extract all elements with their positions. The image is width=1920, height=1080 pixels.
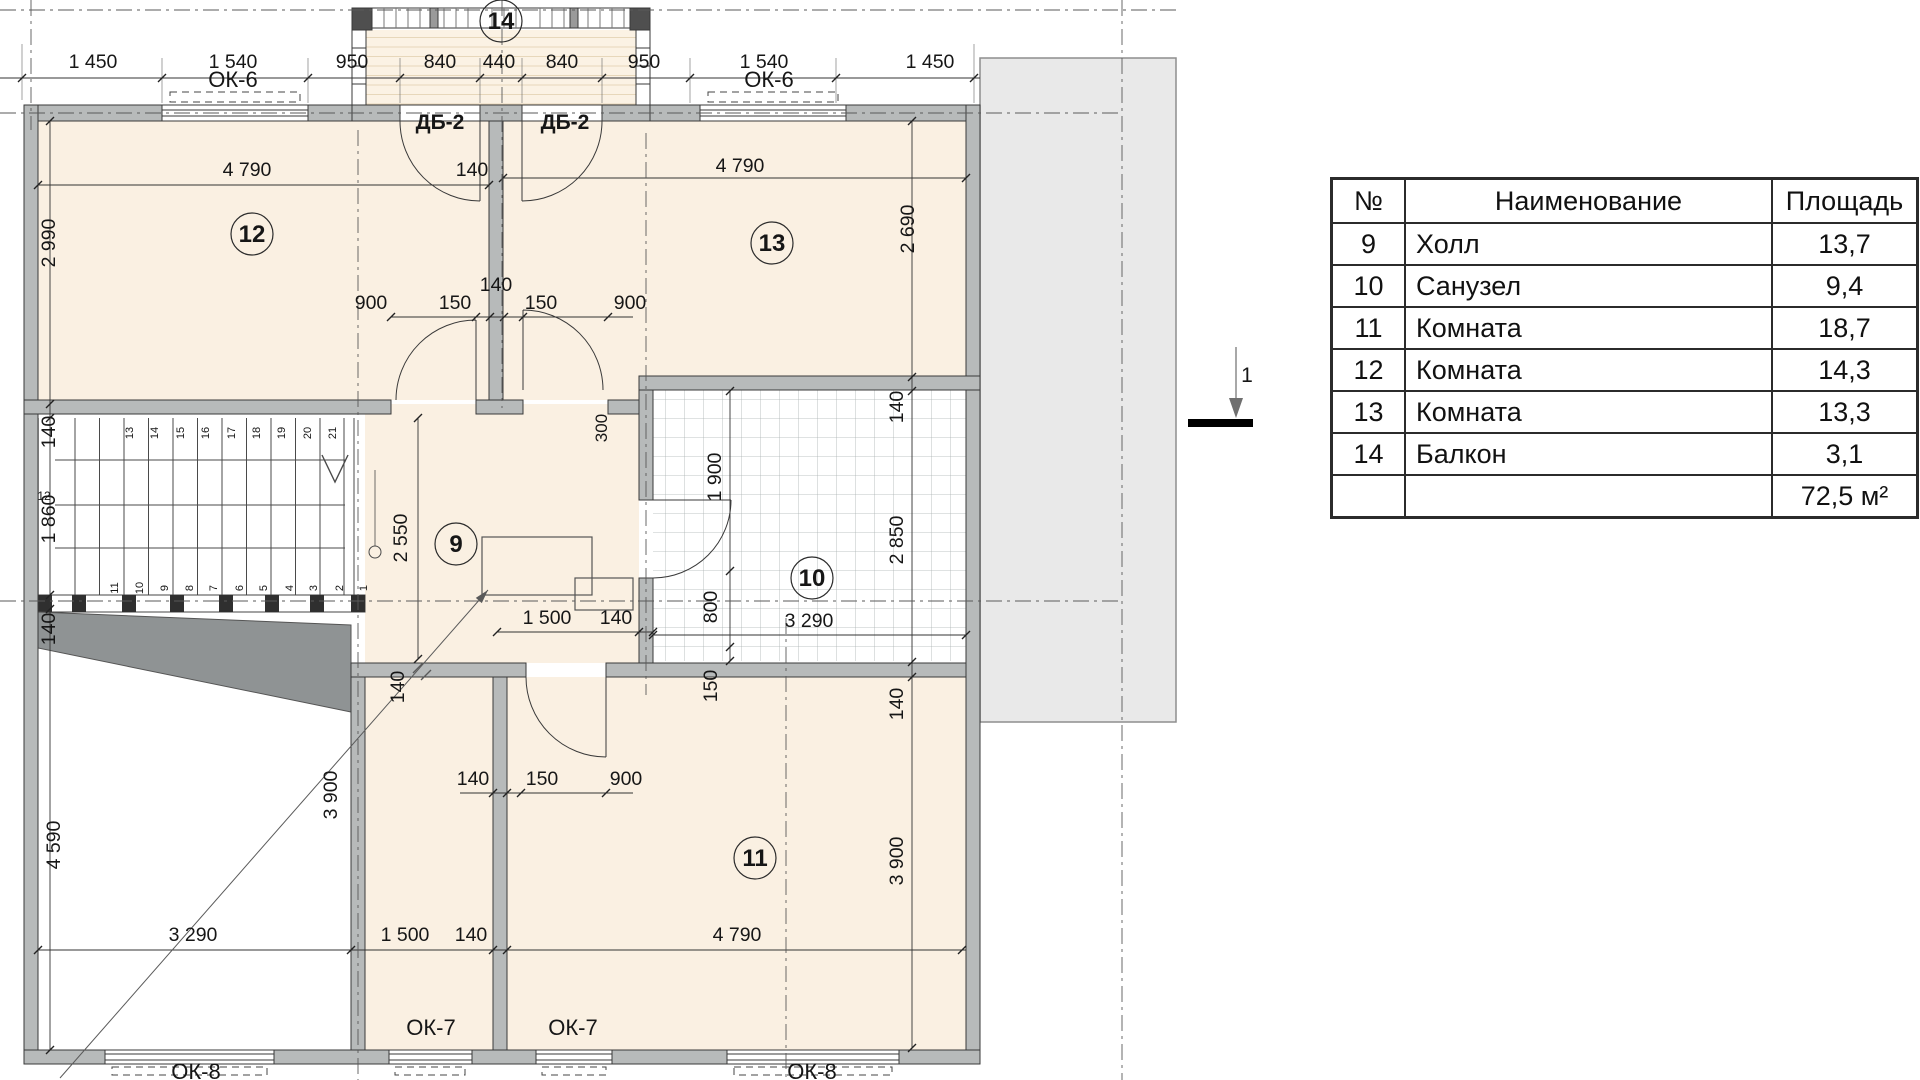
- dim-label: 17: [226, 427, 238, 439]
- dim-label: 140: [38, 613, 60, 646]
- dim-label: 950: [628, 51, 661, 73]
- table-header-area: Площадь: [1772, 179, 1917, 223]
- dim-label: 4 790: [713, 924, 762, 946]
- table-cell-area: 13,7: [1772, 223, 1917, 265]
- dim-label: 1: [1241, 364, 1253, 387]
- dim-label: 12: [37, 489, 51, 503]
- dim-label: 10: [134, 582, 146, 594]
- dim-label: 140: [455, 924, 488, 946]
- table-cell-name: Комната: [1405, 391, 1772, 433]
- table-cell-area: 13,3: [1772, 391, 1917, 433]
- floor-plan-page: 1 4501 5409508404408409501 5401 4504 790…: [0, 0, 1920, 1080]
- svg-text:13: 13: [759, 230, 786, 257]
- dim-label: 3: [308, 585, 320, 591]
- dim-label: 5: [258, 585, 270, 591]
- table-cell-name: Балкон: [1405, 433, 1772, 475]
- table-cell-name: Комната: [1405, 307, 1772, 349]
- table-cell-name: Комната: [1405, 349, 1772, 391]
- dim-label: 6: [234, 585, 246, 591]
- dim-label: 140: [480, 274, 513, 296]
- dim-label: 13: [124, 427, 136, 439]
- dim-label: 140: [456, 159, 489, 181]
- dim-label: 140: [886, 688, 908, 721]
- dim-label: ДБ-2: [541, 111, 590, 134]
- table-cell-area: 9,4: [1772, 265, 1917, 307]
- dim-label: 3 290: [785, 610, 834, 632]
- table-cell-area: 3,1: [1772, 433, 1917, 475]
- table-header-num: №: [1332, 179, 1405, 223]
- window-tag: ОК-7: [548, 1015, 598, 1040]
- dim-label: 900: [355, 292, 388, 314]
- window-tag: ОК-7: [406, 1015, 456, 1040]
- dim-label: 1 500: [381, 924, 430, 946]
- dim-label: 9: [159, 585, 171, 591]
- table-cell-num: 9: [1332, 223, 1405, 265]
- table-cell-name: [1405, 475, 1772, 517]
- dim-label: 800: [700, 591, 722, 624]
- dim-label: 3 900: [320, 770, 342, 819]
- stair-cut-band: [38, 595, 365, 612]
- svg-text:11: 11: [742, 845, 767, 872]
- table-cell-area: 18,7: [1772, 307, 1917, 349]
- window-ok7-right: [536, 1050, 612, 1064]
- dim-label: 11: [109, 582, 121, 593]
- balcony-post-right: [630, 8, 650, 30]
- dim-label: 300: [592, 414, 611, 442]
- table-cell-num: 14: [1332, 433, 1405, 475]
- window-tag: ОК-8: [171, 1059, 221, 1080]
- dim-label: 140: [600, 607, 633, 629]
- table-cell-name: Санузел: [1405, 265, 1772, 307]
- svg-text:12: 12: [239, 221, 266, 248]
- dim-label: 140: [38, 416, 60, 449]
- dim-label: 4 590: [43, 820, 65, 869]
- stair-underside-wedge: [38, 612, 351, 712]
- table-cell-num: 12: [1332, 349, 1405, 391]
- dim-label: 15: [175, 427, 187, 439]
- svg-text:9: 9: [449, 531, 462, 558]
- dim-label: 2 690: [897, 204, 919, 253]
- dim-label: 2 850: [886, 515, 908, 564]
- window-tag: ОК-6: [208, 67, 258, 92]
- dim-label: 3 900: [886, 836, 908, 885]
- dim-label: 3 290: [169, 924, 218, 946]
- svg-text:14: 14: [488, 8, 515, 35]
- dim-label: 21: [327, 427, 339, 439]
- dim-label: 150: [525, 292, 558, 314]
- dim-label: 2 550: [390, 513, 412, 562]
- table-cell-num: 11: [1332, 307, 1405, 349]
- table-cell-total-area: 72,5 м²: [1772, 475, 1917, 517]
- dim-label: 14: [149, 427, 161, 439]
- dim-label: 1 900: [704, 452, 726, 501]
- table-cell-num: 10: [1332, 265, 1405, 307]
- dim-label: ДБ-2: [416, 111, 465, 134]
- dim-label: 4 790: [716, 155, 765, 177]
- dim-label: 16: [200, 427, 212, 439]
- dim-label: 900: [610, 768, 643, 790]
- dim-label: 1 450: [906, 51, 955, 73]
- dim-label: 840: [546, 51, 579, 73]
- table-header-name: Наименование: [1405, 179, 1772, 223]
- dim-label: 140: [886, 391, 908, 424]
- dim-label: 140: [387, 671, 409, 704]
- table-cell-num: 13: [1332, 391, 1405, 433]
- dim-label: 150: [700, 670, 722, 703]
- table-cell-name: Холл: [1405, 223, 1772, 265]
- dim-label: 8: [184, 585, 196, 591]
- dim-label: 7: [208, 585, 220, 591]
- table-cell-area: 14,3: [1772, 349, 1917, 391]
- dim-label: 18: [251, 427, 263, 439]
- svg-text:10: 10: [799, 565, 826, 592]
- window-ok7-left: [389, 1050, 472, 1064]
- dim-label: 2 990: [38, 218, 60, 267]
- dim-label: 440: [483, 51, 516, 73]
- dim-label: 20: [302, 427, 314, 439]
- balcony-post-left: [352, 8, 372, 30]
- section-marker: [1188, 347, 1253, 427]
- section-bar: [1188, 419, 1253, 427]
- window-tag: ОК-8: [787, 1059, 837, 1080]
- dim-label: 1 500: [523, 607, 572, 629]
- dim-label: 4 790: [223, 159, 272, 181]
- dim-label: 19: [276, 427, 288, 439]
- room-schedule-table: №НаименованиеПлощадь9Холл13,710Санузел9,…: [1330, 177, 1919, 519]
- dim-label: 2: [334, 585, 346, 591]
- table-cell-num: [1332, 475, 1405, 517]
- section-arrow: [1229, 398, 1243, 418]
- window-tag: ОК-6: [744, 67, 794, 92]
- dim-label: 950: [336, 51, 369, 73]
- dim-label: 840: [424, 51, 457, 73]
- dim-label: 4: [284, 585, 296, 591]
- adjacent-roof-block: [980, 58, 1176, 722]
- dim-label: 140: [457, 768, 490, 790]
- dim-label: 150: [439, 292, 472, 314]
- dim-label: 1 450: [69, 51, 118, 73]
- staircase: [38, 418, 381, 595]
- dim-label: 1: [358, 585, 370, 591]
- floor-plan-drawing: 1 4501 5409508404408409501 5401 4504 790…: [0, 0, 1920, 1080]
- dim-label: 900: [614, 292, 647, 314]
- dim-label: 150: [526, 768, 559, 790]
